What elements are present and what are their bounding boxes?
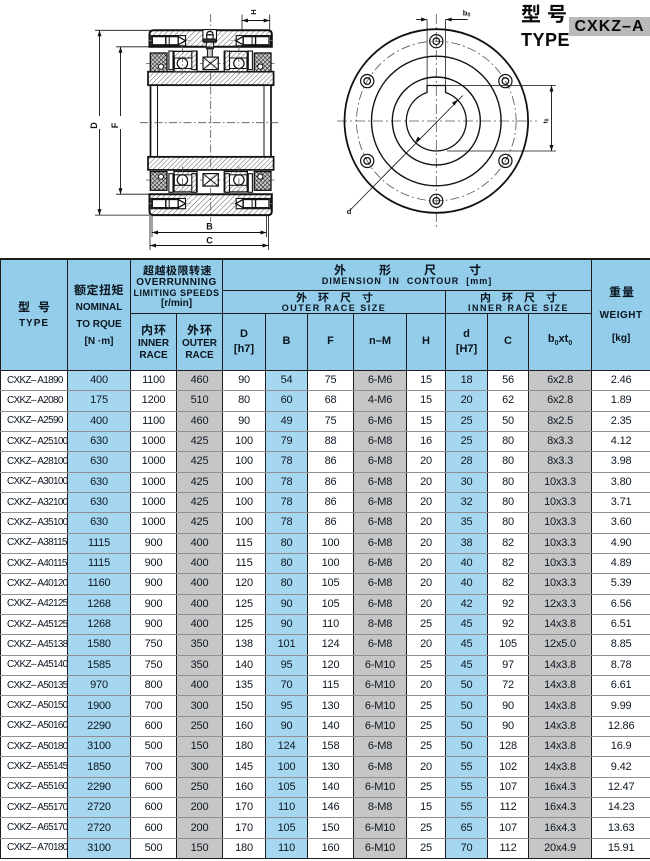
svg-text:D: D (89, 122, 99, 129)
svg-text:t0: t0 (543, 118, 551, 123)
svg-text:F: F (110, 122, 120, 128)
svg-text:B: B (206, 222, 213, 232)
svg-text:d: d (347, 207, 352, 216)
svg-text:b0: b0 (463, 9, 471, 19)
svg-text:H: H (249, 9, 258, 14)
svg-text:C: C (206, 236, 213, 246)
